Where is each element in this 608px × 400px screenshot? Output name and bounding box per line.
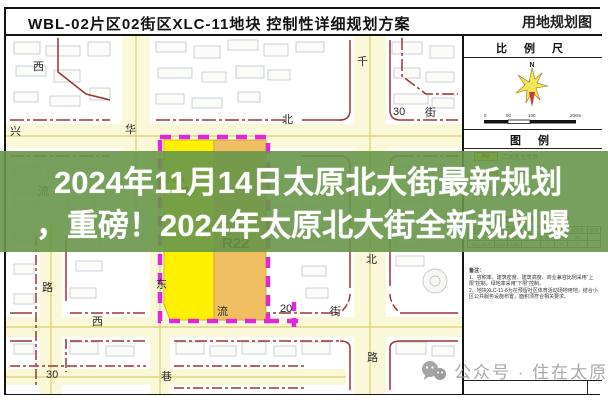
plan-title: WBL-02片区02街区XLC-11地块 控制性详细规划方案 (28, 13, 411, 34)
legend-section-title: 图 例 (464, 132, 602, 148)
road-label: 20 (280, 303, 292, 315)
watermark: 公众号 · 住在太原 (420, 358, 608, 383)
title-bar: WBL-02片区02街区XLC-11地块 控制性详细规划方案 用地规划图 (6, 9, 602, 36)
scale-tick: 50 (506, 113, 512, 118)
road-label: 流 (217, 303, 228, 319)
headline-line2: ，重磅！2024年太原北大街全新规划曝 (36, 200, 570, 245)
wechat-icon (420, 360, 448, 382)
road-label: 西 (33, 58, 44, 74)
road-label: 北 (282, 111, 293, 127)
road-label: 东 (156, 276, 167, 292)
headline-line1: 2024年11月14日太原北大街最新规划 (54, 157, 562, 202)
park-circle (423, 269, 447, 293)
note-line: 1、容积率、建筑密度、建筑高度、商业兼容比例采用“上限”控制，绿地率采用“下限”… (469, 275, 599, 288)
compass-rose-icon: N (502, 59, 566, 111)
divider (464, 57, 602, 58)
road-label: 路 (367, 349, 378, 365)
scale-tick: 100 (528, 113, 536, 118)
scale-tick: 200m (570, 113, 582, 118)
divider (464, 129, 602, 130)
road-label: 街 (330, 303, 341, 319)
road-label: 华 (125, 121, 136, 137)
road-label: 30 (46, 369, 58, 381)
planning-map-screenshot: WBL-02片区02街区XLC-11地块 控制性详细规划方案 用地规划图 (0, 0, 608, 400)
road-label: 巷 (161, 368, 172, 384)
note-line: 2、地块XLC-11-6为在预留社区体育活动场地用地，结合小区公共服务设施布置，… (469, 288, 599, 301)
road-label: 街 (425, 104, 436, 120)
road-label: 北 (366, 251, 377, 267)
headline-overlay: 2024年11月14日太原北大街最新规划 ，重磅！2024年太原北大街全新规划曝 (0, 151, 608, 252)
notes-block: 备注： 1、容积率、建筑密度、建筑高度、商业兼容比例采用“上限”控制，绿地率采用… (469, 268, 599, 301)
road-label: 30 (393, 106, 405, 118)
road-label: 兴 (10, 123, 21, 139)
road-label: 千 (357, 53, 368, 69)
road-label: 路 (42, 279, 53, 295)
sheet-title: 用地规划图 (522, 12, 592, 32)
divider (464, 148, 602, 149)
scale-tick: 0 (484, 113, 487, 118)
road-label: 西 (92, 313, 103, 329)
scale-section-title: 比 例 尺 (464, 40, 602, 56)
scale-bar: 0 50 100 200m (482, 112, 586, 128)
watermark-text: 公众号 · 住在太原 (454, 358, 608, 383)
